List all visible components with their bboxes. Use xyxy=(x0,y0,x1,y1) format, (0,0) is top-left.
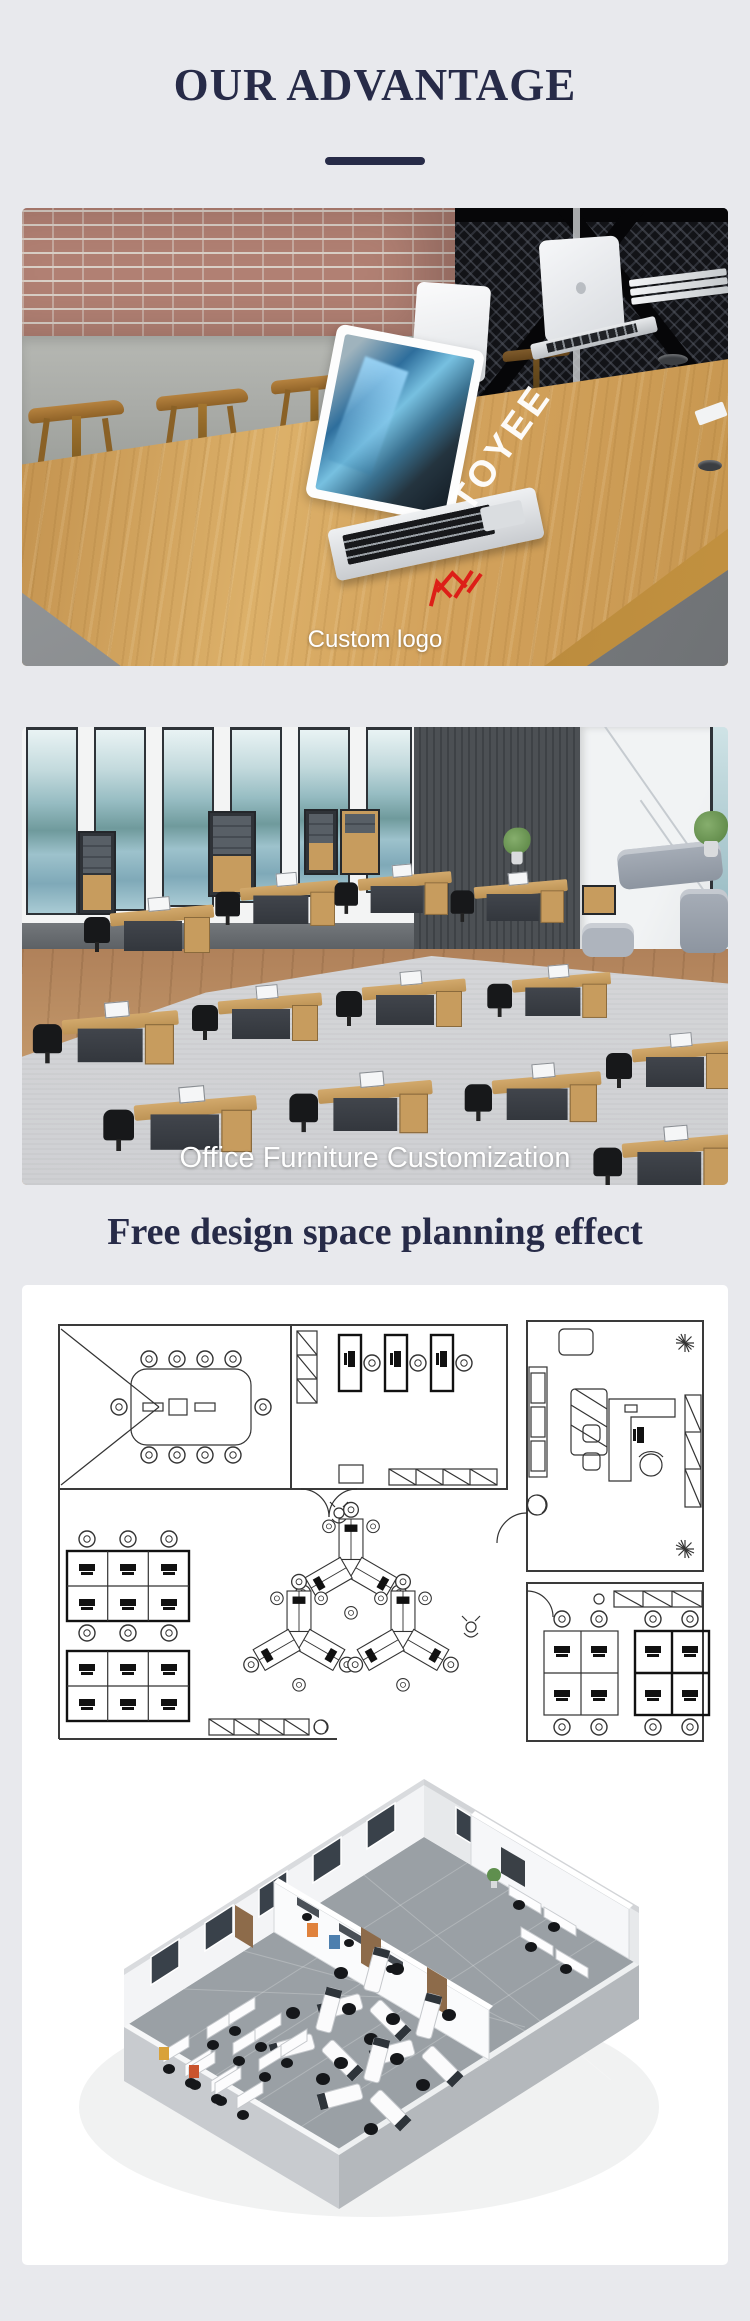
wooden-chair xyxy=(28,404,124,419)
wall-base xyxy=(22,923,414,949)
photo-caption: Office Furniture Customization xyxy=(22,1142,728,1175)
floor-plan-drawing xyxy=(39,1307,711,1753)
lounge-sofa xyxy=(680,889,728,953)
storage-cabinet xyxy=(304,809,338,875)
advantage-section: OUR ADVANTAGE xyxy=(0,0,750,2321)
design-heading: Free design space planning effect xyxy=(0,1210,750,1254)
lounge-chair xyxy=(582,923,634,957)
potted-plant xyxy=(503,828,530,865)
wooden-chair xyxy=(156,392,248,406)
section-title: OUR ADVANTAGE xyxy=(0,58,750,112)
storage-cabinet xyxy=(78,831,116,915)
office-customization-photo: Office Furniture Customization xyxy=(22,727,728,1185)
cable-grommet xyxy=(698,460,722,471)
brick-wall xyxy=(22,208,460,336)
title-divider xyxy=(325,157,425,165)
3d-render-drawing xyxy=(39,1777,711,2247)
side-table xyxy=(582,885,616,915)
space-planning-image xyxy=(22,1285,728,2265)
storage-cabinet xyxy=(208,811,256,897)
potted-plant xyxy=(694,811,728,857)
slat-feature-wall xyxy=(414,727,580,979)
storage-cabinet xyxy=(340,809,380,875)
custom-logo-photo: TOYEE Custom logo xyxy=(22,208,728,666)
photo-caption: Custom logo xyxy=(22,626,728,654)
